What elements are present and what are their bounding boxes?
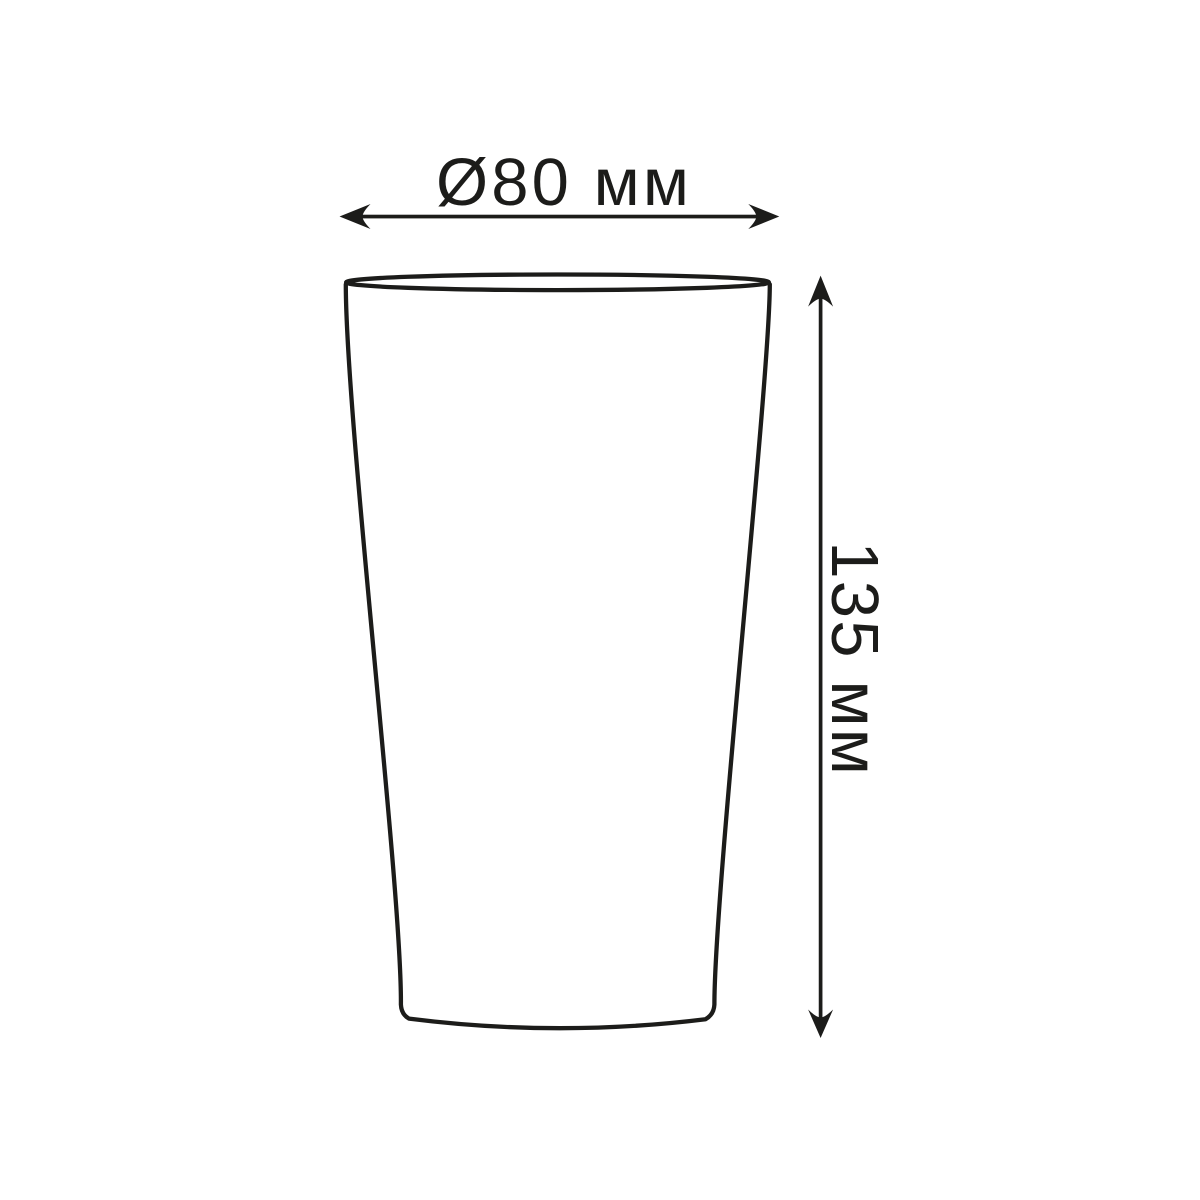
svg-text:135 мм: 135 мм (817, 541, 892, 777)
svg-text:Ø80 мм: Ø80 мм (436, 145, 692, 220)
